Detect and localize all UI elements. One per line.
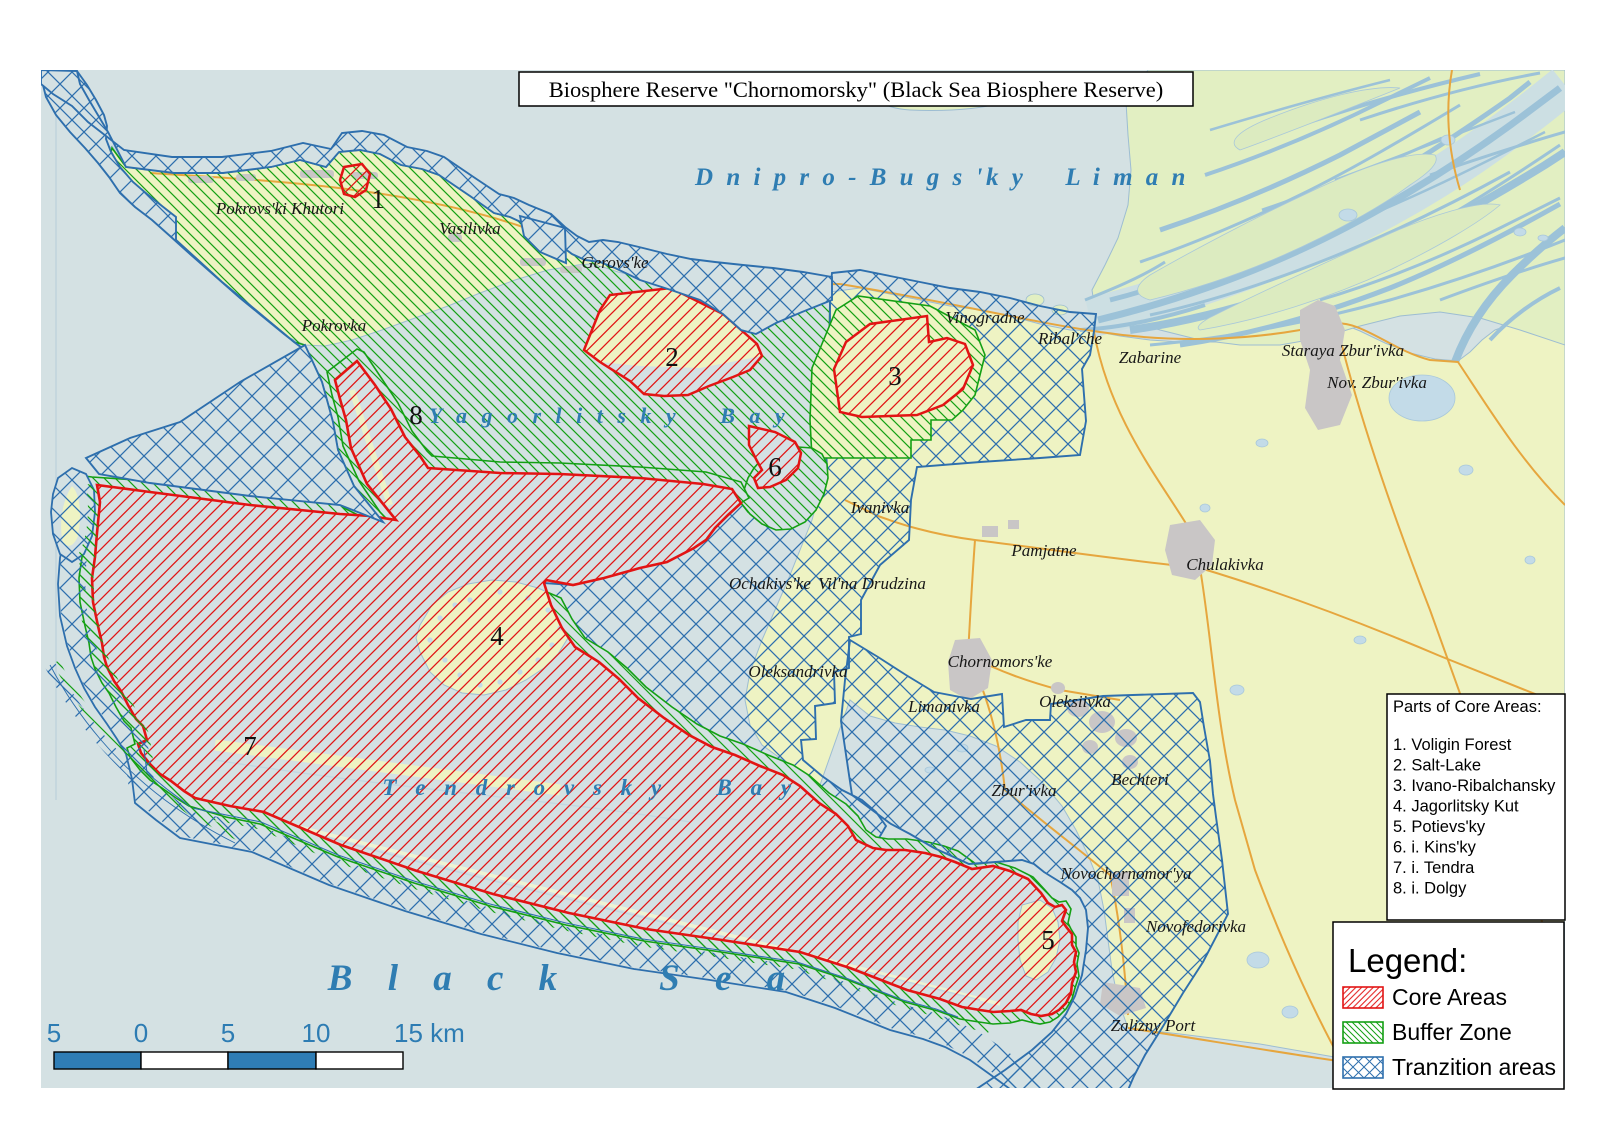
svg-text:5: 5 [1041,925,1055,955]
svg-text:Pokrovka: Pokrovka [301,316,367,335]
svg-text:Vasilivka: Vasilivka [439,219,500,238]
svg-text:Zalizny Port: Zalizny Port [1111,1016,1197,1035]
svg-text:Bechteri: Bechteri [1111,770,1169,789]
svg-text:Core Areas: Core Areas [1392,984,1507,1010]
svg-text:Ochakivs'ke: Ochakivs'ke [729,574,811,593]
svg-text:Oleksandrivka: Oleksandrivka [748,662,847,681]
svg-text:6: 6 [768,452,782,482]
svg-text:Nov. Zbur'ivka: Nov. Zbur'ivka [1326,373,1427,392]
svg-text:D n i p r o - B u g s 'k y: D n i p r o - B u g s 'k y L i m a n [694,164,1189,191]
svg-text:6. i. Kins'ky: 6. i. Kins'ky [1393,839,1477,857]
svg-text:2: 2 [665,342,679,372]
svg-text:3. Ivano-Ribalchansky: 3. Ivano-Ribalchansky [1393,777,1556,795]
svg-text:4. Jagorlitsky Kut: 4. Jagorlitsky Kut [1393,798,1519,816]
svg-text:Vil'na Drudzina: Vil'na Drudzina [818,574,926,593]
svg-text:Oleksiivka: Oleksiivka [1039,692,1111,711]
svg-text:Zbur'ivka: Zbur'ivka [991,781,1056,800]
svg-text:4: 4 [490,621,504,651]
svg-text:Pokrovs'ki Khutori: Pokrovs'ki Khutori [215,199,344,218]
svg-text:Parts of Core Areas:: Parts of Core Areas: [1393,698,1542,716]
svg-text:7: 7 [243,731,257,761]
svg-text:Limanivka: Limanivka [907,697,980,716]
svg-text:Tranzition areas: Tranzition areas [1392,1054,1556,1080]
svg-text:Ivanivka: Ivanivka [850,498,910,517]
svg-text:8. i. Dolgy: 8. i. Dolgy [1393,880,1467,898]
svg-text:Ribal'che: Ribal'che [1037,329,1103,348]
svg-text:Biosphere Reserve "Chornomorsk: Biosphere Reserve "Chornomorsky" (Black … [549,77,1163,102]
svg-text:Buffer Zone: Buffer Zone [1392,1019,1512,1045]
svg-text:Staraya Zbur'ivka: Staraya Zbur'ivka [1282,341,1404,360]
svg-text:15 km: 15 km [394,1018,465,1048]
svg-text:Chulakivka: Chulakivka [1186,555,1263,574]
svg-text:Novofedorivka: Novofedorivka [1145,917,1246,936]
svg-text:1. Voligin Forest: 1. Voligin Forest [1393,736,1512,754]
svg-text:0: 0 [134,1018,148,1048]
svg-text:3: 3 [888,361,902,391]
svg-text:Legend:: Legend: [1348,942,1467,979]
svg-text:Zabarine: Zabarine [1119,348,1182,367]
svg-text:10: 10 [302,1018,331,1048]
svg-text:8: 8 [409,400,423,430]
svg-text:Gerovs'ke: Gerovs'ke [581,253,649,272]
svg-text:Novochornomor'ya: Novochornomor'ya [1059,864,1191,883]
svg-text:2. Salt-Lake: 2. Salt-Lake [1393,757,1481,775]
svg-text:Chornomors'ke: Chornomors'ke [948,652,1053,671]
svg-text:Y a g o r l i t s k y B a y: Y a g o r l i t s k y B a y [429,403,789,428]
svg-text:B l a c k S e a: B l a c k S e a [327,958,798,999]
svg-text:7. i. Tendra: 7. i. Tendra [1393,859,1475,877]
svg-text:Pamjatne: Pamjatne [1010,541,1077,560]
svg-text:5: 5 [221,1018,235,1048]
svg-text:5: 5 [47,1018,61,1048]
svg-text:T e n d r o v s k y B a y: T e n d r o v s k y B a y [382,775,797,800]
svg-text:5. Potievs'ky: 5. Potievs'ky [1393,818,1486,836]
svg-text:Vinogradne: Vinogradne [945,308,1024,327]
svg-text:1: 1 [371,184,385,214]
